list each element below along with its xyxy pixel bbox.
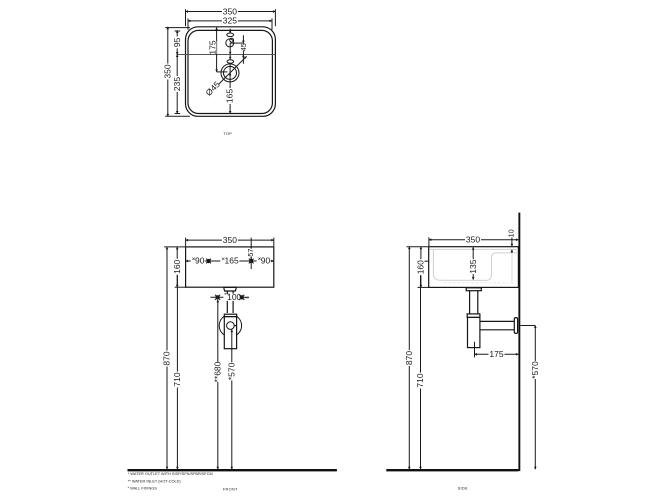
- svg-text:˟90: ˟90: [258, 256, 271, 266]
- svg-text:870: 870: [404, 351, 414, 365]
- svg-text:100: 100: [227, 292, 241, 302]
- svg-text:710: 710: [172, 372, 182, 386]
- svg-text:350: 350: [223, 235, 237, 245]
- svg-text:57: 57: [246, 249, 255, 257]
- svg-text:235: 235: [172, 77, 182, 91]
- svg-text:˟165: ˟165: [222, 256, 239, 266]
- svg-text:* WATER OUTLET WITH SISP/SFN/: * WATER OUTLET WITH SISP/SFN/SFBR/SFCM: [128, 472, 213, 476]
- svg-text:870: 870: [162, 351, 172, 365]
- svg-text:FRONT: FRONT: [223, 487, 238, 492]
- svg-text:175: 175: [208, 40, 218, 54]
- svg-text:*570: *570: [530, 361, 540, 379]
- svg-text:TOP: TOP: [223, 131, 232, 136]
- svg-text:˟ WALL FIXINGS: ˟ WALL FIXINGS: [128, 487, 157, 491]
- svg-text:325: 325: [223, 16, 237, 26]
- svg-text:*570: *570: [226, 362, 236, 380]
- svg-text:160: 160: [172, 259, 182, 273]
- svg-text:710: 710: [415, 373, 425, 387]
- svg-text:**: **: [245, 296, 249, 301]
- svg-text:350: 350: [162, 64, 172, 78]
- svg-text:95: 95: [172, 37, 182, 47]
- svg-text:175: 175: [489, 349, 503, 359]
- svg-text:SIDE: SIDE: [458, 486, 468, 491]
- svg-text:10: 10: [506, 229, 515, 237]
- svg-text:** WATER INLET (HOT-COLD): ** WATER INLET (HOT-COLD): [128, 479, 182, 483]
- svg-text:160: 160: [415, 260, 425, 274]
- svg-text:45: 45: [239, 43, 248, 51]
- svg-text:**680: **680: [212, 361, 222, 382]
- svg-text:˟90: ˟90: [192, 256, 205, 266]
- svg-text:165: 165: [225, 89, 235, 103]
- svg-text:350: 350: [466, 235, 480, 245]
- svg-text:135: 135: [468, 259, 478, 273]
